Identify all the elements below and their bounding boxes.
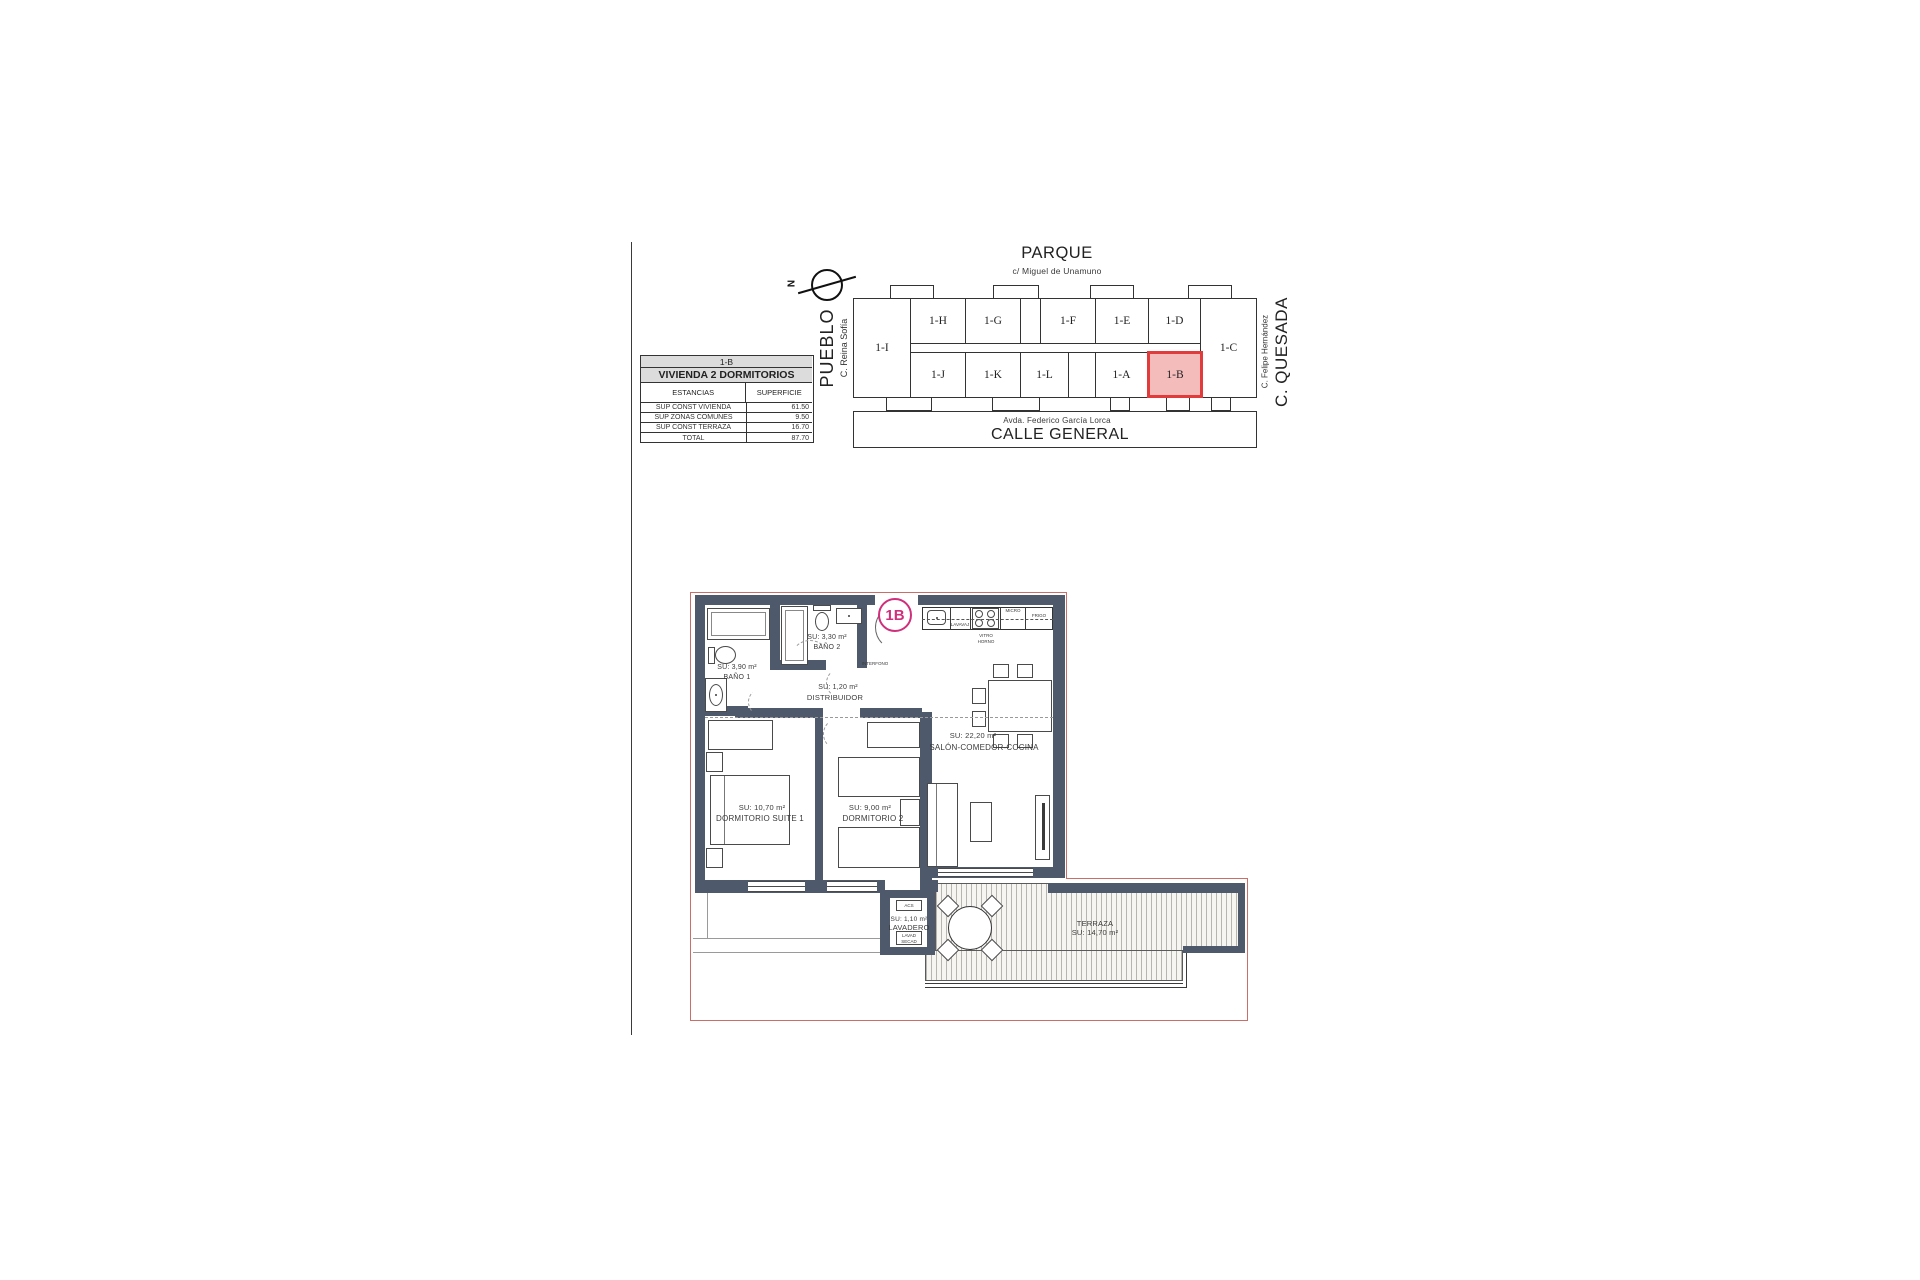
wall-segment: [770, 595, 780, 668]
dining-chair: [972, 688, 986, 704]
wall-segment: [695, 595, 875, 605]
site-unit-1a: 1-A: [1095, 352, 1148, 398]
dorm1-area-label: SU: 10,70 m²: [712, 804, 812, 813]
site-unit-1i: 1-I: [853, 298, 911, 398]
shower-tray: [707, 608, 770, 640]
wall-segment: [815, 708, 823, 893]
park-title: PARQUE: [997, 244, 1117, 263]
floorplan-sheet: PARQUE c/ Miguel de Unamuno N PUEBLO C. …: [0, 0, 1920, 1280]
table-row: SUP ZONAS COMUNES 9.50: [641, 413, 812, 423]
site-unit-1e: 1-E: [1095, 298, 1149, 344]
sofa-back-line: [936, 784, 937, 866]
col-superficie: SUPERFICIE: [745, 383, 812, 402]
row-label: SUP ZONAS COMUNES: [641, 414, 746, 421]
table-unit-value: 1-B: [720, 357, 733, 367]
hob-label-2: HORNO: [974, 639, 998, 644]
site-unit-1f: 1-F: [1040, 298, 1096, 344]
park-street-label: c/ Miguel de Unamuno: [987, 267, 1127, 277]
avda-garcia-lorca-label: Avda. Federico García Lorca: [957, 416, 1157, 425]
toilet-tank: [813, 605, 831, 611]
street-reina-sofia-label: C. Reina Sofía: [839, 298, 853, 398]
row-value: 16.70: [746, 423, 812, 432]
site-unit-1j: 1-J: [910, 352, 966, 398]
lower-floor-outline: [707, 893, 708, 938]
row-value: 61.50: [746, 403, 812, 412]
bano2-area-label: SU: 3,30 m²: [787, 634, 867, 642]
site-terrace-notch: [992, 397, 1040, 411]
single-bed: [838, 827, 920, 868]
site-terrace-notch: [1110, 397, 1130, 411]
area-dashed-line: [705, 717, 1053, 718]
site-core-bottom: [1068, 352, 1096, 398]
wall-segment: [1053, 595, 1065, 878]
wall-segment: [857, 595, 867, 668]
tv-screen: [1042, 803, 1045, 850]
plot-boundary: [690, 592, 1067, 593]
dining-chair: [993, 664, 1009, 678]
wall-segment: [1048, 883, 1245, 893]
site-terrace-notch: [1211, 397, 1231, 411]
door-swing-arc: [748, 688, 776, 716]
wall-segment: [695, 595, 705, 893]
washer-label: LAVAD: [889, 933, 929, 938]
wall-segment: [1238, 893, 1245, 950]
dorm2-area-label: SU: 9,00 m²: [820, 804, 920, 813]
site-unit-1k: 1-K: [965, 352, 1021, 398]
toilet-bowl: [815, 612, 829, 631]
door-swing-arc: [823, 718, 855, 750]
row-value: 9.50: [746, 413, 812, 422]
bano2-name-label: BAÑO 2: [787, 644, 867, 652]
terrace-decking: [925, 950, 1183, 981]
hob-label-1: VITRO: [974, 633, 998, 638]
row-label: SUP CONST VIVIENDA: [641, 404, 746, 411]
table-row-total: TOTAL 87.70: [641, 433, 812, 443]
microwave-label: MICRO: [1001, 608, 1025, 613]
distribuidor-name-label: DISTRIBUIDOR: [795, 694, 875, 703]
table-row: SUP CONST VIVIENDA 61.50: [641, 403, 812, 413]
coffee-table: [970, 802, 992, 842]
street-quesada-label: C. QUESADA: [1272, 292, 1294, 412]
plot-boundary: [1066, 878, 1247, 879]
basin-drain-dot: [715, 694, 717, 696]
page-border-line: [631, 242, 632, 1035]
site-terrace-notch: [886, 397, 932, 411]
single-bed: [838, 757, 920, 797]
wardrobe: [708, 720, 773, 750]
dining-chair: [972, 711, 986, 727]
table-header-row: ESTANCIAS SUPERFICIE: [641, 383, 812, 403]
dining-chair: [1017, 664, 1033, 678]
table-type-value: VIVIENDA 2 DORMITORIOS: [659, 369, 795, 381]
table-unit-row: 1-B: [641, 356, 812, 368]
lavadero-name-label: LAVADERO: [879, 924, 939, 933]
bano1-area-label: SU: 3,90 m²: [697, 664, 777, 672]
window: [748, 881, 805, 892]
dining-table: [988, 680, 1052, 732]
acs-label: ACS: [889, 903, 929, 908]
site-unit-1h: 1-H: [910, 298, 966, 344]
hob-burner: [975, 610, 983, 618]
row-value: 87.70: [746, 433, 812, 443]
north-label: N: [787, 278, 798, 290]
hob-burner: [987, 619, 995, 627]
table-row: SUP CONST TERRAZA 16.70: [641, 423, 812, 433]
plot-boundary: [690, 592, 691, 1021]
dishwasher-label: LAVAVAJ: [948, 622, 972, 627]
terrace-sliding-door: [938, 868, 1033, 877]
lower-floor-outline: [693, 952, 883, 953]
terraza-area-label: SU: 14,70 m²: [1045, 929, 1145, 938]
dorm2-name-label: DORMITORIO 2: [798, 814, 948, 823]
site-unit-1c: 1-C: [1200, 298, 1257, 398]
fridge-label: FRIGO: [1027, 613, 1051, 618]
calle-general-label: CALLE GENERAL: [960, 426, 1160, 444]
row-label: TOTAL: [641, 435, 746, 442]
site-unit-1d: 1-D: [1148, 298, 1201, 344]
unit-badge: 1B: [878, 598, 912, 632]
terrace-edge: [925, 983, 1183, 984]
terrace-round-table: [948, 906, 992, 950]
toilet: [708, 647, 715, 664]
wall-segment: [918, 595, 1065, 605]
wall-segment: [1183, 946, 1245, 953]
salon-name-label: SALÓN-COMEDOR-COCINA: [909, 743, 1059, 752]
terrace-edge: [925, 987, 1187, 988]
street-pueblo-label: PUEBLO: [817, 298, 839, 398]
sink-drain-dot: [848, 615, 850, 617]
col-estancias: ESTANCIAS: [641, 388, 745, 397]
surface-summary-table: 1-B VIVIENDA 2 DORMITORIOS ESTANCIAS SUP…: [640, 355, 814, 443]
salon-area-label: SU: 22,20 m²: [923, 732, 1023, 741]
site-terrace-notch: [1166, 397, 1190, 411]
table-type-row: VIVIENDA 2 DORMITORIOS: [641, 368, 812, 383]
row-label: SUP CONST TERRAZA: [641, 424, 746, 431]
intercom-label: INTERFONO: [855, 661, 895, 666]
hob-burner: [975, 619, 983, 627]
toilet-bowl: [715, 646, 736, 664]
sofa: [927, 783, 958, 867]
site-unit-1g: 1-G: [965, 298, 1021, 344]
terrace-edge: [1186, 952, 1187, 988]
plot-boundary: [690, 1020, 1248, 1021]
window: [827, 881, 877, 892]
distribuidor-area-label: SU: 1,20 m²: [798, 684, 878, 692]
site-core-top: [1020, 298, 1041, 344]
dryer-label: SECAD: [889, 939, 929, 944]
site-unit-1b-highlighted: 1-B: [1147, 351, 1203, 398]
lower-floor-outline: [693, 938, 883, 939]
bano1-name-label: BAÑO 1: [697, 674, 777, 682]
plot-boundary: [1247, 878, 1248, 1021]
plot-boundary: [1066, 592, 1067, 879]
counter-dashed-line: [922, 619, 1053, 620]
hob-burner: [987, 610, 995, 618]
nightstand: [706, 752, 723, 772]
nightstand: [706, 848, 723, 868]
site-unit-1l: 1-L: [1020, 352, 1069, 398]
